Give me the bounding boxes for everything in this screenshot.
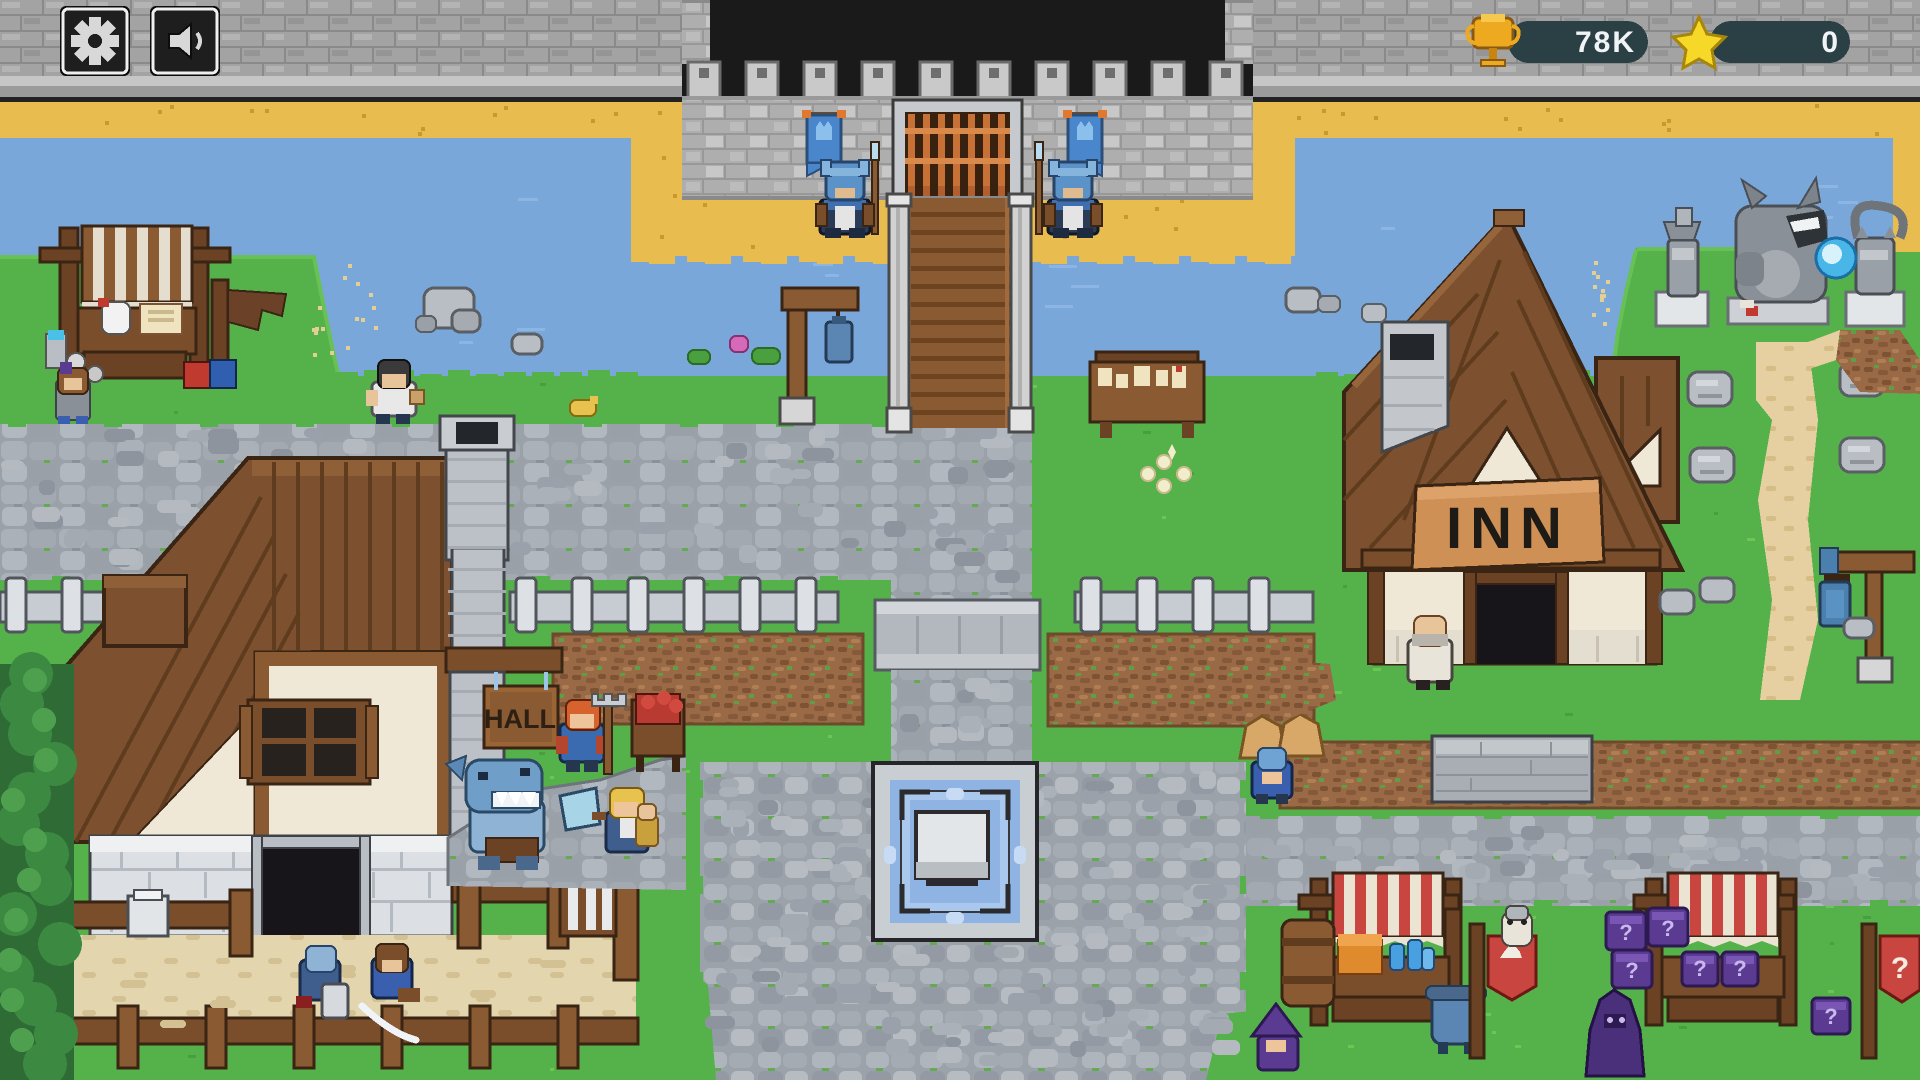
svg-text:?: ? [1891, 952, 1909, 985]
svg-text:?: ? [1619, 920, 1632, 945]
svg-text:?: ? [1824, 1004, 1837, 1029]
svg-text:?: ? [1661, 916, 1674, 941]
svg-text:INN: INN [1446, 496, 1570, 561]
svg-text:?: ? [1693, 956, 1706, 981]
svg-text:HALL: HALL [484, 704, 556, 734]
svg-text:?: ? [1625, 958, 1638, 983]
svg-text:0: 0 [1821, 26, 1840, 59]
svg-text:?: ? [1733, 956, 1746, 981]
svg-text:78K: 78K [1575, 26, 1636, 59]
